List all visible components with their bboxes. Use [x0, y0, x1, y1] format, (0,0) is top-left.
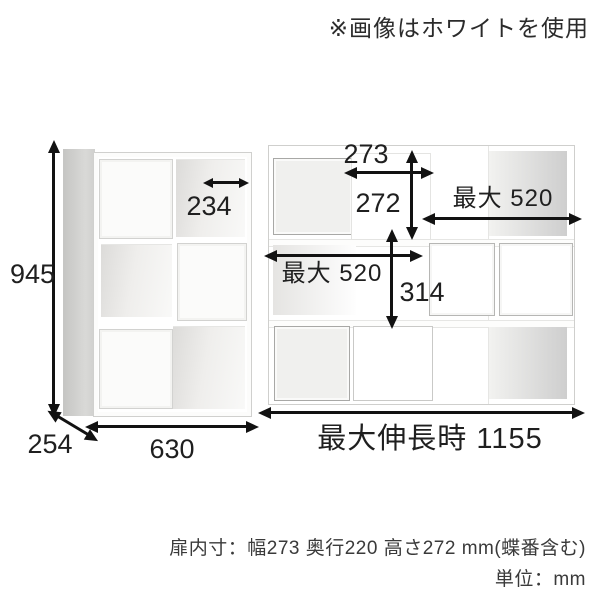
depth-label: 254 — [22, 430, 78, 458]
ext-door-top-left — [273, 158, 353, 235]
ext-door-mid-right — [499, 243, 573, 316]
open-cell-bottom-right — [173, 326, 245, 409]
inner-width-arrow-icon — [212, 181, 240, 184]
color-note: ※画像はホワイトを使用 — [329, 9, 589, 43]
door-height-label: 272 — [350, 189, 406, 217]
width-label: 630 — [144, 435, 200, 463]
door-mid-right — [177, 243, 247, 321]
max-extension-label: 最大伸長時 1155 — [316, 424, 544, 454]
width-arrow-icon — [97, 425, 247, 428]
inner-height-arrow-icon — [390, 241, 393, 317]
unit-caption: 単位：mm — [169, 565, 586, 596]
max-width-top-label: 最大 520 — [445, 186, 561, 211]
inner-height-label: 314 — [394, 278, 450, 306]
product-dimension-diagram: ※画像はホワイトを使用 234 945 254 630 — [0, 0, 600, 600]
max-extension-arrow-icon — [270, 411, 573, 414]
inner-width-label: 234 — [183, 192, 235, 220]
door-top-left — [99, 159, 173, 239]
ext-door-bottom-left — [274, 326, 350, 401]
door-inner-size-caption: 扉内寸：幅273 奥行220 高さ272 mm(蝶番含む) — [169, 534, 586, 565]
door-bottom-left — [99, 329, 173, 409]
open-shelf-bottom-right — [489, 327, 567, 399]
height-label: 945 — [10, 260, 54, 288]
caption-block: 扉内寸：幅273 奥行220 高さ272 mm(蝶番含む) 単位：mm — [169, 534, 586, 596]
door-width-label: 273 — [336, 140, 396, 168]
unit-side-panel — [63, 149, 95, 416]
open-cell-mid-left — [101, 244, 172, 317]
ext-open-box-bottom — [353, 326, 433, 401]
door-height-arrow-icon — [410, 162, 413, 228]
max-width-mid-label: 最大 520 — [276, 261, 388, 286]
max-width-top-arrow-icon — [434, 217, 570, 220]
